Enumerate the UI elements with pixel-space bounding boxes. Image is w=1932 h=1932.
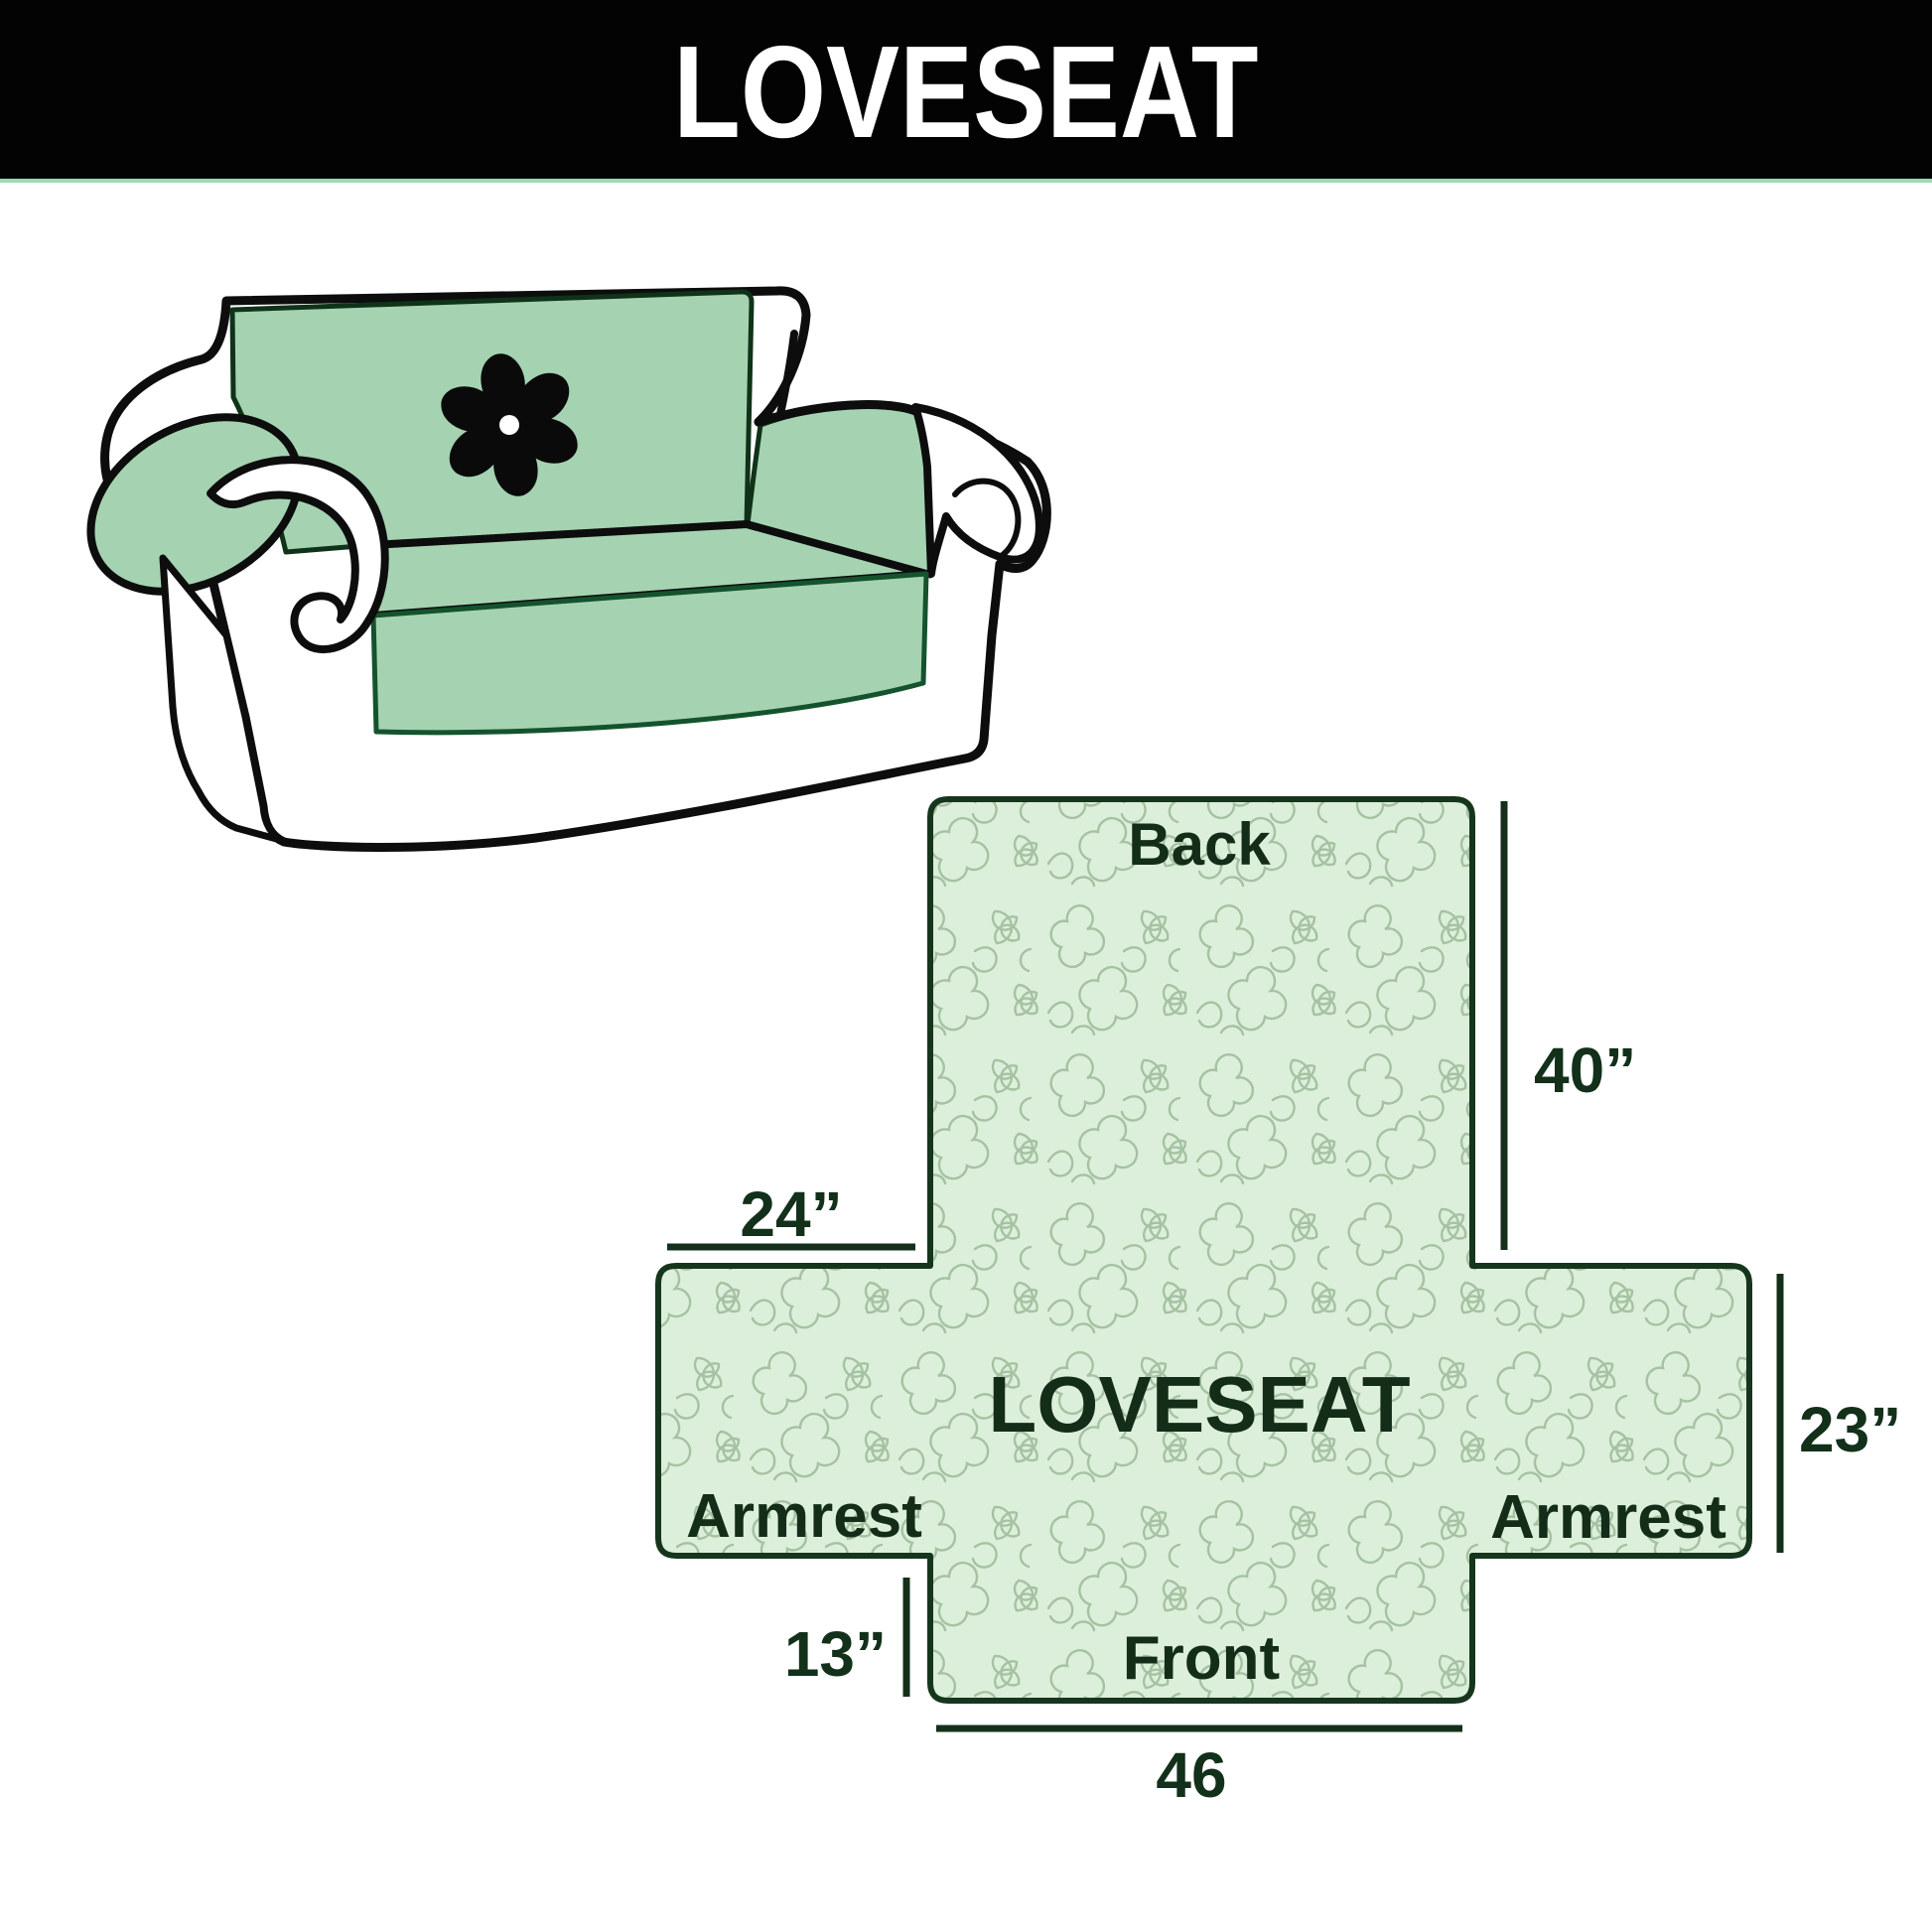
loveseat-cover-infographic: LOVESEAT [0,0,1932,1932]
illustration-and-diagram-canvas: Back LOVESEAT Armrest Armrest Front 24” … [0,0,1932,1932]
dim-armrest-width: 24” [740,1178,842,1250]
dim-front-height: 13” [784,1618,887,1690]
dim-front-width: 46 [1156,1739,1226,1811]
right-arm-roll [915,407,1039,574]
loveseat-illustration [60,291,1046,848]
label-product: LOVESEAT [988,1360,1410,1449]
dim-back-height: 40” [1534,1035,1636,1106]
cover-template-diagram: Back LOVESEAT Armrest Armrest Front 24” … [658,799,1901,1811]
label-armrest-right: Armrest [1490,1483,1726,1552]
label-front: Front [1123,1624,1280,1693]
label-armrest-left: Armrest [686,1482,922,1551]
dim-armrest-height: 23” [1799,1394,1901,1465]
label-back: Back [1128,811,1271,878]
